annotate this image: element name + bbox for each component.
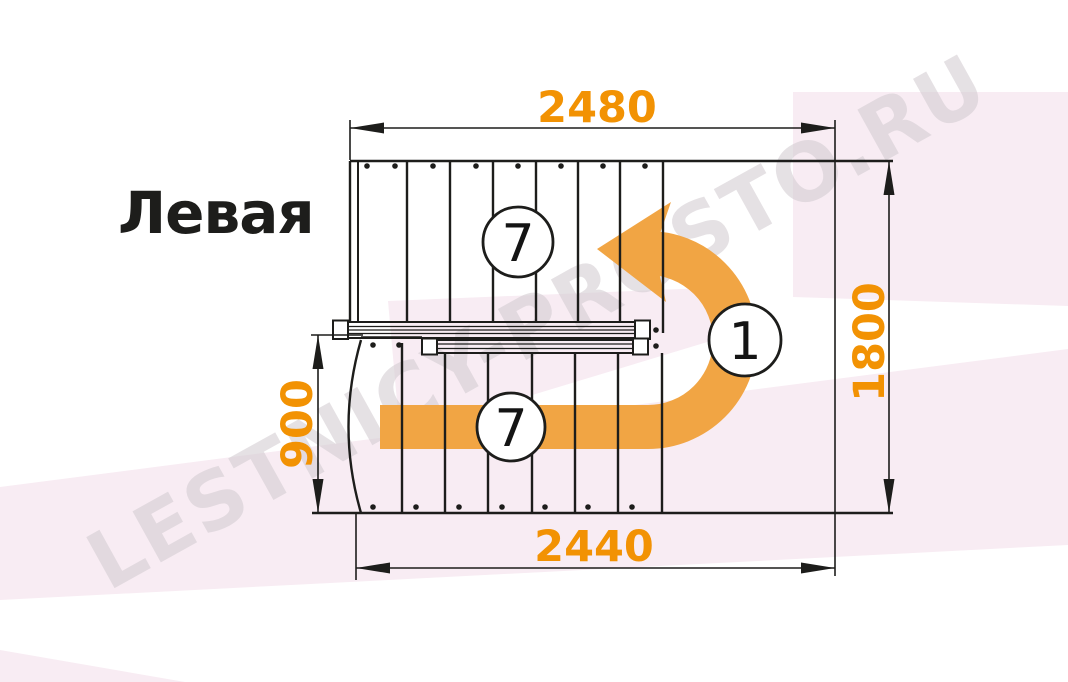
dim-arrowhead-left: [356, 563, 390, 574]
dimension-right-depth: 1800: [845, 161, 895, 513]
dim-arrowhead-up: [313, 335, 324, 369]
upper-steps-count: 7: [501, 214, 534, 274]
landing-lower-right-post: [633, 339, 648, 355]
dimension-value-left: 900: [273, 379, 323, 469]
dim-arrowhead-down: [313, 479, 324, 513]
lower-steps-count: 7: [494, 399, 527, 459]
dim-arrowhead-right: [801, 123, 835, 134]
landing-lower-beam: [437, 340, 633, 353]
page-title: Левая: [118, 184, 314, 242]
dim-arrowhead-down: [884, 479, 895, 513]
landing-left-post: [333, 321, 348, 340]
staircase-plan-diagram: LESTNICY-PROSTO.RU: [0, 0, 1068, 682]
dimension-value-right: 1800: [845, 282, 895, 402]
direction-arrow: [380, 202, 735, 427]
lower-flight-dowel-dots: [370, 504, 635, 510]
landing-lower-left-post: [422, 339, 437, 355]
turn-number: 1: [728, 312, 761, 372]
dimension-value-top: 2480: [537, 83, 657, 133]
landing-platform: [333, 321, 659, 355]
landing-right-post: [635, 321, 650, 340]
plan-drawing: 2480 2440 1800 900 7: [0, 0, 1068, 682]
dim-arrowhead-right: [801, 563, 835, 574]
lower-flight-curved-edge: [349, 340, 362, 513]
dim-arrowhead-left: [350, 123, 384, 134]
dim-arrowhead-up: [884, 161, 895, 195]
dimension-value-bottom: 2440: [534, 522, 654, 572]
dimension-bottom-width: 2440: [356, 514, 835, 580]
